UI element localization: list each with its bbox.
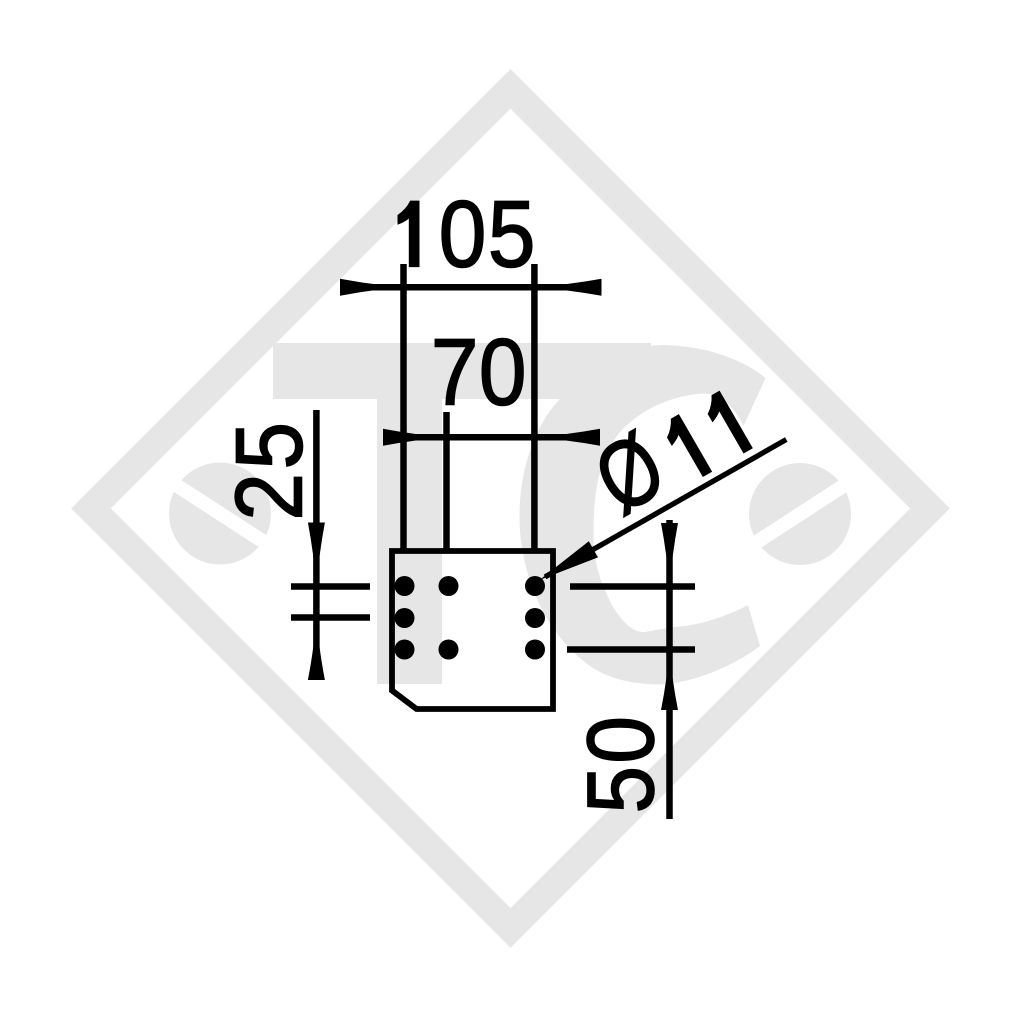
svg-text:0: 0 — [568, 716, 674, 764]
svg-text:2: 2 — [216, 473, 322, 521]
svg-text:5: 5 — [568, 766, 674, 814]
svg-text:5: 5 — [488, 181, 536, 287]
svg-text:0: 0 — [439, 181, 487, 287]
svg-text:5: 5 — [216, 422, 322, 470]
svg-text:7: 7 — [431, 319, 479, 425]
svg-text:0: 0 — [479, 319, 527, 425]
